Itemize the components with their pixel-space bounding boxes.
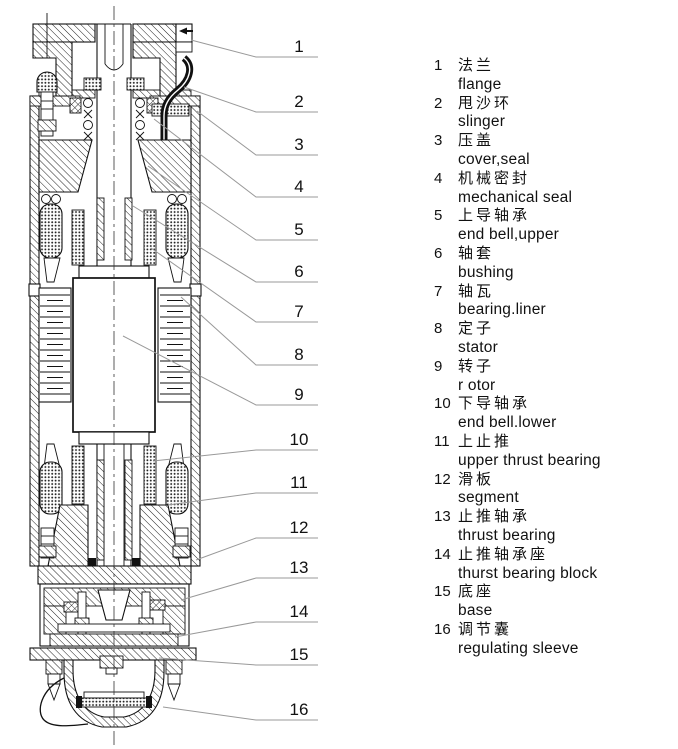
base-bolt-right: [166, 660, 182, 700]
callout-3: 3: [294, 135, 303, 154]
part-name-en: base: [434, 602, 676, 621]
part-name-en: stator: [434, 339, 676, 358]
callout-13: 13: [290, 558, 309, 577]
part-name-en: r otor: [434, 377, 676, 396]
part-name-en: end bell,upper: [434, 226, 676, 245]
end-bell-upper-left: [39, 140, 92, 192]
part-name-en: bushing: [434, 264, 676, 283]
part-name-en: upper thrust bearing: [434, 452, 676, 471]
part-name-zh: 止推轴承: [458, 508, 530, 527]
part-name-en: thrust bearing: [434, 527, 676, 546]
part-number: 6: [434, 245, 458, 264]
callout-9: 9: [294, 385, 303, 404]
callout-numbers: 1 2 3 4 5 6 7 8 9 10 11 12 13 14 15 16: [290, 37, 309, 719]
technical-diagram-page: 1 2 3 4 5 6 7 8 9 10 11 12 13 14 15 16 1…: [0, 0, 678, 749]
part-name-zh: 上止推: [458, 433, 512, 452]
callout-12: 12: [290, 518, 309, 537]
callout-16: 16: [290, 700, 309, 719]
center-nut: [100, 656, 123, 668]
part-number: 13: [434, 508, 458, 527]
part-name-zh: 机械密封: [458, 170, 530, 189]
segment-pad-left: [64, 602, 79, 612]
part-number: 11: [434, 433, 458, 452]
part-name-en: cover,seal: [434, 151, 676, 170]
part-number: 5: [434, 207, 458, 226]
part-name-en: segment: [434, 489, 676, 508]
part-name-zh: 定子: [458, 320, 494, 339]
part-number: 1: [434, 57, 458, 76]
end-bell-upper-right: [138, 140, 191, 192]
legend-item: 2甩沙环 slinger: [434, 95, 676, 133]
part-name-zh: 下导轴承: [458, 395, 530, 414]
part-name-zh: 滑板: [458, 471, 494, 490]
legend-item: 6轴套 bushing: [434, 245, 676, 283]
legend-item: 16调节囊 regulating sleeve: [434, 621, 676, 659]
ball-bearing-right: [136, 99, 145, 141]
ball-bearing-left: [84, 99, 93, 141]
part-name-en: bearing.liner: [434, 301, 676, 320]
legend-item: 4机械密封 mechanical seal: [434, 170, 676, 208]
legend-item: 8定子 stator: [434, 320, 676, 358]
part-number: 2: [434, 95, 458, 114]
part-number: 3: [434, 132, 458, 151]
part-number: 8: [434, 320, 458, 339]
part-name-zh: 法兰: [458, 57, 494, 76]
legend-item: 5上导轴承 end bell,upper: [434, 207, 676, 245]
part-number: 10: [434, 395, 458, 414]
part-number: 14: [434, 546, 458, 565]
lower-guide-bearing: [39, 505, 190, 566]
part-number: 16: [434, 621, 458, 640]
callout-8: 8: [294, 345, 303, 364]
callout-1: 1: [294, 37, 303, 56]
part-name-en: flange: [434, 76, 676, 95]
part-name-en: regulating sleeve: [434, 640, 676, 659]
thrust-bearing-assembly: [38, 558, 191, 646]
stator-winding-lower: [40, 444, 188, 514]
part-number: 15: [434, 583, 458, 602]
part-name-zh: 底座: [458, 583, 494, 602]
legend-item: 14止推轴承座 thurst bearing block: [434, 546, 676, 584]
part-number: 4: [434, 170, 458, 189]
callout-10: 10: [290, 430, 309, 449]
part-number: 7: [434, 283, 458, 302]
callout-2: 2: [294, 92, 303, 111]
callout-5: 5: [294, 220, 303, 239]
legend-item: 3压盖 cover,seal: [434, 132, 676, 170]
segment-pad-right: [150, 600, 165, 610]
callout-15: 15: [290, 645, 309, 664]
legend-item: 13止推轴承 thrust bearing: [434, 508, 676, 546]
base: [30, 648, 196, 727]
callout-6: 6: [294, 262, 303, 281]
part-name-en: mechanical seal: [434, 189, 676, 208]
callout-11: 11: [290, 473, 308, 492]
callout-7: 7: [294, 302, 303, 321]
part-name-zh: 止推轴承座: [458, 546, 548, 565]
legend-item: 11上止推 upper thrust bearing: [434, 433, 676, 471]
legend-item: 12滑板 segment: [434, 471, 676, 509]
legend-item: 9转子 r otor: [434, 358, 676, 396]
part-name-zh: 甩沙环: [458, 95, 512, 114]
part-number: 12: [434, 471, 458, 490]
part-name-zh: 调节囊: [458, 621, 512, 640]
part-name-zh: 轴套: [458, 245, 494, 264]
legend-item: 10下导轴承 end bell.lower: [434, 395, 676, 433]
legend-item: 1法兰 flange: [434, 57, 676, 95]
part-name-en: thurst bearing block: [434, 565, 676, 584]
part-name-zh: 压盖: [458, 132, 494, 151]
part-name-en: end bell.lower: [434, 414, 676, 433]
callout-14: 14: [290, 602, 309, 621]
part-name-en: slinger: [434, 113, 676, 132]
part-name-zh: 上导轴承: [458, 207, 530, 226]
part-number: 9: [434, 358, 458, 377]
parts-legend: 1法兰 flange 2甩沙环 slinger 3压盖 cover,seal 4…: [434, 57, 676, 659]
callout-4: 4: [294, 177, 303, 196]
legend-item: 7轴瓦 bearing.liner: [434, 283, 676, 321]
part-name-zh: 轴瓦: [458, 283, 494, 302]
part-name-zh: 转子: [458, 358, 494, 377]
legend-item: 15底座 base: [434, 583, 676, 621]
